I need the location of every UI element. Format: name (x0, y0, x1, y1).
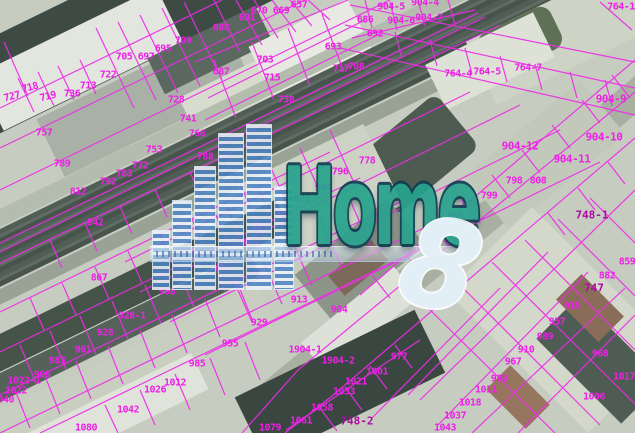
parcel-label: 955 (222, 339, 239, 350)
parcel-label: 727 (3, 90, 22, 105)
parcel-label: 821 (294, 194, 311, 205)
parcel-label: 764-5 (473, 67, 501, 78)
parcel-label: 928 (97, 328, 114, 339)
parcel-label: 908 (159, 287, 176, 298)
parcel-label: 686 (357, 15, 374, 26)
parcel-label: 928-1 (118, 311, 146, 322)
parcel-label: 904-6 (387, 16, 415, 27)
parcel-label: 968 (592, 349, 609, 360)
parcel-label: 880 (216, 262, 233, 273)
parcel-label: 695 (155, 44, 172, 55)
parcel-label: 857 (252, 223, 269, 234)
parcel-label: 719 (39, 90, 58, 105)
cadastral-map-viewport[interactable]: 7277187197367137227056976957096886916706… (0, 0, 635, 433)
parcel-label: 688 (213, 23, 230, 34)
parcel-label: 1012 (164, 378, 186, 389)
parcel-label: 705 (116, 52, 133, 63)
parcel-label: 1011 (475, 385, 497, 396)
parcel-label: 877 (191, 248, 208, 259)
parcel-label: 904-11 (554, 153, 591, 166)
parcel-label: 929 (251, 318, 268, 329)
parcel-label: 809 (462, 199, 479, 210)
parcel-label: 766 (189, 129, 206, 140)
parcel-label: 772 (132, 161, 149, 172)
parcel-label: 864 (242, 238, 259, 249)
parcel-label: 977 (391, 352, 408, 363)
parcel-label: 687 (213, 67, 230, 78)
parcel-label: 1040 (0, 395, 14, 406)
parcel-label: 1006 (583, 392, 605, 403)
parcel-label: 1037 (444, 411, 466, 422)
parcel-label: 967 (505, 357, 522, 368)
parcel-label: 1061 (290, 416, 312, 427)
parcel-label: 904 (331, 305, 348, 316)
parcel-label: 798 (506, 176, 523, 187)
parcel-label: 708 (348, 62, 365, 73)
parcel-label: 985 (189, 359, 206, 370)
parcel-label: 792 (100, 177, 117, 188)
parcel-label: 919 (564, 301, 581, 312)
parcel-label: 709 (175, 36, 192, 47)
parcel-label: 748-1 (575, 209, 608, 222)
parcel-label: 983 (49, 356, 66, 367)
parcel-label: 867 (91, 273, 108, 284)
parcel-label: 753 (146, 145, 163, 156)
parcel-label: 1079 (259, 423, 281, 433)
parcel-label: 799 (481, 191, 498, 202)
parcel-label: 1042 (117, 405, 139, 416)
parcel-label: 904-5 (377, 2, 405, 13)
parcel-label: 669 (273, 6, 290, 17)
parcel-label: 1904-2 (321, 356, 354, 367)
parcel-label: 843 (275, 209, 292, 220)
parcel-label: 788 (197, 152, 214, 163)
parcel-label: 783 (116, 169, 133, 180)
parcel-label: 748-2 (340, 415, 373, 428)
parcel-label: 703 (257, 55, 274, 66)
parcel-label: 1017 (613, 372, 635, 383)
parcel-label: 910 (518, 345, 535, 356)
parcel-label: 838 (447, 212, 464, 223)
parcel-label: 989 (537, 332, 554, 343)
parcel-label: 789 (54, 159, 71, 170)
parcel-label: 812 (70, 187, 87, 198)
parcel-label: 778 (359, 156, 376, 167)
parcel-label: 722 (100, 70, 117, 81)
parcel-label: 715 (264, 73, 281, 84)
parcel-label: 692 (367, 29, 384, 40)
parcel-label: 747 (584, 282, 604, 295)
parcel-label: 904-7 (415, 13, 443, 24)
parcel-labels-layer: 7277187197367137227056976957096886916706… (0, 0, 635, 433)
parcel-label: 796 (332, 167, 349, 178)
parcel-label: 1033 (333, 387, 355, 398)
parcel-label: 670 (251, 6, 268, 17)
parcel-label: 842 (87, 218, 104, 229)
parcel-label: 728 (168, 95, 185, 106)
parcel-label: 839 (430, 218, 447, 229)
parcel-label: 913 (291, 295, 308, 306)
parcel-label: 859 (619, 257, 635, 268)
parcel-label: 961 (75, 345, 92, 356)
parcel-label: 718 (21, 81, 40, 96)
parcel-label: 757 (36, 128, 53, 139)
parcel-label: 904 (315, 183, 332, 194)
parcel-label: 713 (80, 81, 97, 92)
parcel-label: 764-7 (514, 63, 542, 74)
parcel-label: 741 (180, 114, 197, 125)
parcel-label: 693 (325, 42, 342, 53)
parcel-label: 764-4 (444, 69, 472, 80)
parcel-label: 1026 (144, 385, 166, 396)
parcel-label: 1080 (75, 423, 97, 433)
parcel-label: 657 (291, 0, 308, 11)
parcel-label: 1043 (434, 423, 456, 433)
parcel-label: 988 (491, 374, 508, 385)
parcel-label: 904-9 (596, 93, 627, 106)
parcel-label: 904-12 (502, 140, 539, 153)
parcel-label: 1904-1 (288, 345, 321, 356)
parcel-label: 736 (64, 89, 81, 100)
parcel-label: 1001 (366, 367, 388, 378)
parcel-label: 882 (599, 271, 616, 282)
parcel-label: 697 (138, 52, 155, 63)
parcel-label: 764-1 (607, 2, 635, 13)
parcel-label: 904-4 (411, 0, 439, 9)
parcel-label: 730 (278, 95, 295, 106)
parcel-label: 1018 (459, 398, 481, 409)
parcel-label: 957 (549, 317, 566, 328)
parcel-label: 808 (530, 176, 547, 187)
parcel-label: 904-10 (586, 131, 623, 144)
parcel-label: 1058 (311, 403, 333, 414)
